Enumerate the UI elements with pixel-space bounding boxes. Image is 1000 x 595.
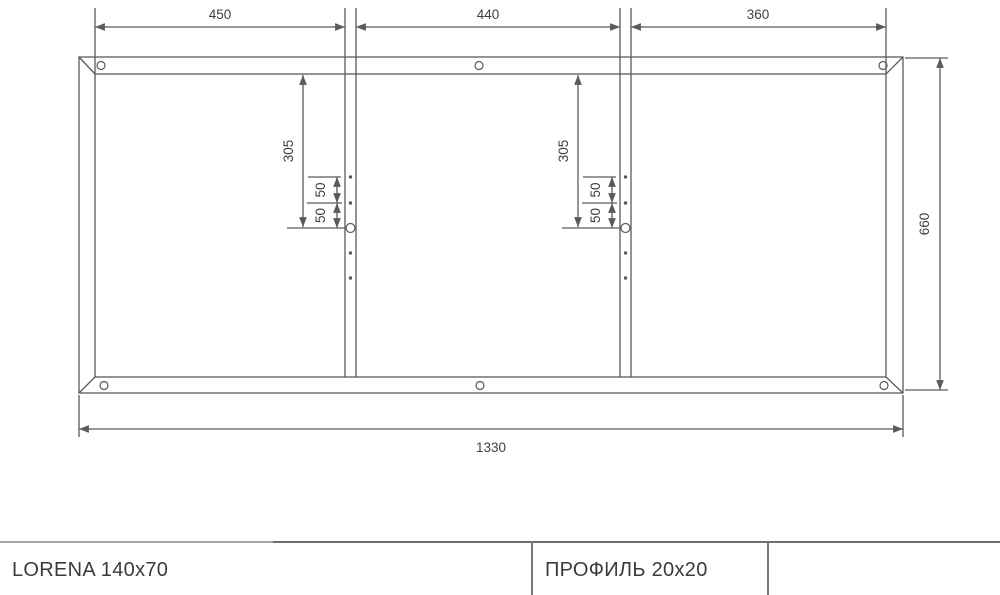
- rivet-dot: [349, 276, 352, 279]
- dim-label-section-1: 450: [209, 7, 232, 22]
- dimension-frame-width: 1330: [79, 395, 903, 455]
- hole-top-left: [97, 62, 105, 70]
- dimension-crossbar-left: 305 50 50: [281, 75, 346, 228]
- miter-top-left: [79, 57, 95, 74]
- dimension-top-sections: 450 440 360: [95, 7, 886, 74]
- frame-mounting-holes: [97, 62, 888, 390]
- dim-label-hole-offset: 305: [556, 140, 571, 163]
- frame-technical-drawing: 450 440 360 305 50 50 305 50 50: [0, 0, 1000, 530]
- crossbar-left: [345, 8, 356, 377]
- crossbar-hole: [346, 224, 355, 233]
- title-block-divider-1: [531, 542, 533, 595]
- rule-segment-dark: [273, 541, 1000, 543]
- rule-segment-light: [0, 541, 273, 543]
- rivet-dot: [624, 201, 627, 204]
- dim-label-hole-spacing: 50: [588, 182, 603, 197]
- rivet-dot: [624, 276, 627, 279]
- dim-label-section-2: 440: [477, 7, 500, 22]
- drawing-page: 450 440 360 305 50 50 305 50 50: [0, 0, 1000, 595]
- dim-label-hole-offset: 305: [281, 140, 296, 163]
- frame-inner-edge: [95, 74, 886, 377]
- rivet-dot: [624, 175, 627, 178]
- frame-outline: [79, 57, 903, 393]
- hole-top-center: [475, 62, 483, 70]
- hole-bottom-center: [476, 382, 484, 390]
- rivet-dot: [349, 175, 352, 178]
- dim-label-frame-height: 660: [917, 213, 932, 236]
- miter-top-right: [886, 57, 903, 74]
- dimension-frame-height: 660: [905, 58, 948, 390]
- dimension-crossbar-right: 305 50 50: [556, 75, 621, 228]
- dim-label-hole-spacing: 50: [588, 208, 603, 223]
- dim-label-hole-spacing: 50: [313, 182, 328, 197]
- hole-bottom-right: [880, 382, 888, 390]
- crossbar-right: [620, 8, 631, 377]
- title-block-divider-2: [767, 542, 769, 595]
- profile-spec-label: ПРОФИЛЬ 20x20: [545, 559, 708, 582]
- miter-bottom-left: [79, 377, 95, 393]
- dim-label-section-3: 360: [747, 7, 770, 22]
- title-block-rule: [0, 541, 1000, 543]
- rivet-dot: [349, 201, 352, 204]
- rivet-dot: [624, 251, 627, 254]
- dim-label-hole-spacing: 50: [313, 208, 328, 223]
- rivet-dot: [349, 251, 352, 254]
- model-name-label: LORENA 140x70: [12, 559, 168, 582]
- crossbar-hole: [621, 224, 630, 233]
- dim-label-frame-width: 1330: [476, 440, 506, 455]
- hole-bottom-left: [100, 382, 108, 390]
- frame-outer-edge: [79, 57, 903, 393]
